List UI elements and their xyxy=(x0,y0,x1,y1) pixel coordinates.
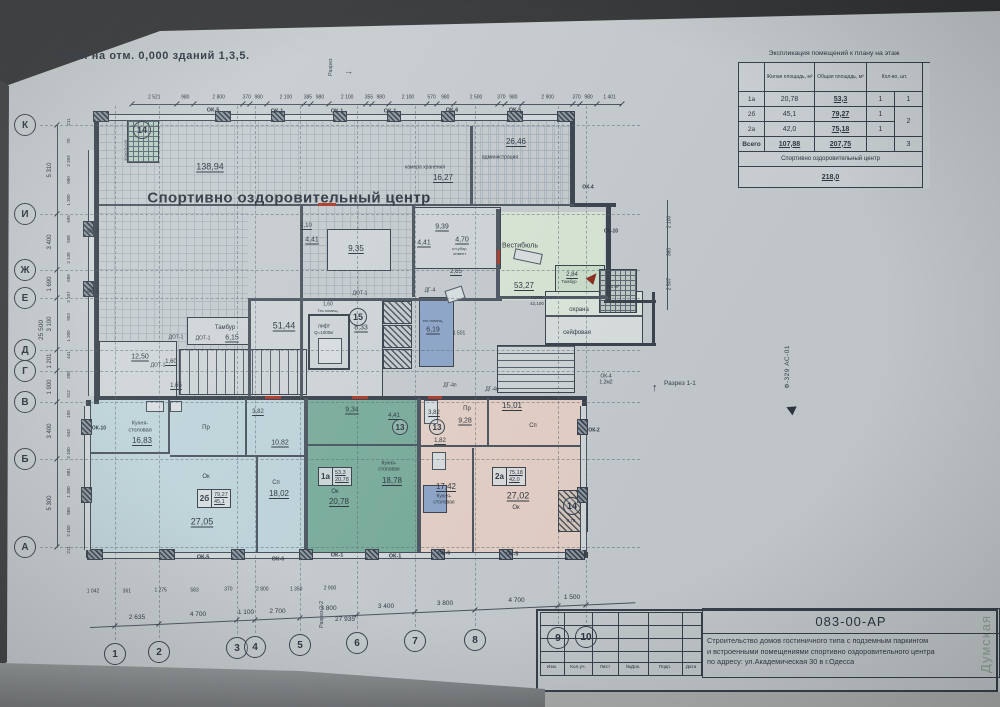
axis-line xyxy=(40,298,640,299)
dim-label: 1 350 xyxy=(290,587,303,592)
axis-bubble-row-Г: Г xyxy=(14,360,36,382)
plan-label: ДОТ-1 xyxy=(151,364,166,369)
axis-line xyxy=(237,106,238,634)
plan-label: 1,2м2 xyxy=(599,381,612,386)
plan-label: ОК-1 xyxy=(389,554,402,560)
plan-label: 18,78 xyxy=(382,477,402,485)
dim-line xyxy=(667,200,668,310)
plan-label: Q=1000кг xyxy=(314,331,334,336)
wall xyxy=(652,292,655,344)
plan-label: ОК-6 xyxy=(272,557,285,563)
axis-line xyxy=(40,547,640,548)
description-line: Строительство домов гостиничного типа с … xyxy=(707,636,999,647)
tb-col: Изм. xyxy=(547,665,557,670)
plan-label: тех.помещ. xyxy=(423,319,444,323)
document-number: 083-00-АР xyxy=(703,609,999,634)
plan-label: Сп xyxy=(272,480,280,486)
staircase-right xyxy=(498,346,574,392)
window xyxy=(88,150,95,396)
apartment-tag: 2б79,2745,1 xyxy=(197,489,231,508)
plan-label: 1,60 xyxy=(323,303,333,308)
dim-label: 980 xyxy=(181,96,189,101)
section-mark-bottom: Разрез 2-2 xyxy=(319,588,325,628)
dim-label: 2 521 xyxy=(148,96,161,101)
plan-label: 17,42 xyxy=(436,483,456,491)
exp-footer-value: 218,0 xyxy=(739,167,923,188)
plan-label: 1,65 xyxy=(170,383,182,389)
dim-label: 5 310 xyxy=(47,162,53,177)
dim-label: 385 xyxy=(304,96,312,101)
dim-label: 5 300 xyxy=(47,495,53,510)
wall-pier xyxy=(82,420,91,434)
dim-label: 3 800 xyxy=(437,601,453,608)
plan-label: 4,70 xyxy=(455,237,469,244)
axis-line xyxy=(40,371,640,372)
tag-type: 1а xyxy=(319,468,333,485)
dim-label: 1 401 xyxy=(603,96,616,101)
section-arrow-right-icon: ↑ xyxy=(652,382,658,394)
exp-header-total: Общая площадь, м² xyxy=(815,63,867,92)
wall xyxy=(170,455,306,457)
exp-header-blank xyxy=(739,63,765,92)
dim-label: 2 800 xyxy=(212,96,225,101)
wall-pier xyxy=(232,550,244,559)
dim-label: 1 200 xyxy=(67,330,72,341)
exp-cell: 207,75 xyxy=(815,137,867,152)
axis-bubble-col-2: 2 xyxy=(148,641,170,663)
dim-label: 2 900 xyxy=(324,587,337,592)
red-mark xyxy=(497,250,500,264)
dim-label: 2 700 xyxy=(269,608,285,615)
dim-total-left: 25 500 xyxy=(39,320,46,340)
plan-label: 3,0х0,3=0,9 xyxy=(124,140,128,161)
description-line: по адресу: ул.Академическая 30 в г.Одесс… xyxy=(707,657,999,668)
circled-number: 14 xyxy=(133,121,151,139)
exp-cell: 2б xyxy=(739,107,765,122)
dim-label: 200 xyxy=(67,371,72,379)
plan-label: инвент. xyxy=(453,252,466,256)
plan-label: Тех.помещ. xyxy=(317,309,338,313)
plan-label: 16,83 xyxy=(132,437,152,445)
dim-label: 370 xyxy=(497,96,505,101)
plan-label: 2,10 xyxy=(300,223,312,229)
exp-cell: 79,27 xyxy=(815,107,867,122)
dim-tick xyxy=(619,101,625,107)
titleblock-grid: Изм. Кол.уч. Лист №Док. Подп. Дата xyxy=(540,612,702,676)
exp-cell: 1 xyxy=(867,92,895,107)
dim-label: 211 xyxy=(67,546,72,553)
dim-label: 980 xyxy=(67,177,72,185)
section-mark-right: Разрез 1-1 xyxy=(664,380,696,387)
axis-bubble-row-А: А xyxy=(14,536,36,558)
dim-label: 495 xyxy=(67,216,72,224)
wall xyxy=(472,448,474,552)
stamp-triangle-icon xyxy=(784,403,796,416)
vent-shaft xyxy=(384,350,411,368)
titleblock-document: 083-00-АР Строительство домов гостинично… xyxy=(702,608,1000,678)
dim-label: 1 900 xyxy=(47,379,53,394)
exp-cell: 1 xyxy=(867,107,895,122)
tb-col: Лист xyxy=(600,665,610,670)
plan-label: ОК-5 xyxy=(197,555,210,561)
plan-label: столовая xyxy=(128,428,151,434)
dim-label: 881 xyxy=(67,468,72,476)
dim-label: 688 xyxy=(67,274,72,282)
plan-label: ОК-1 xyxy=(87,230,98,235)
axis-bubble-row-Д: Д xyxy=(14,339,36,361)
safe-room xyxy=(546,316,642,344)
dim-label: 943 xyxy=(67,430,72,438)
plan-label: ОК-5 xyxy=(207,108,220,114)
wall xyxy=(248,298,251,397)
plan-label: 16,27 xyxy=(433,174,453,182)
project-description: Строительство домов гостиничного типа с … xyxy=(703,634,999,668)
plan-label: камера хранения xyxy=(405,166,445,171)
plan-label: 1,82 xyxy=(434,438,446,444)
hall-title: Спортивно оздоровительный центр xyxy=(147,191,430,206)
exp-cell: 20,78 xyxy=(765,92,815,107)
red-mark xyxy=(265,396,281,399)
dim-label: 360 xyxy=(668,248,673,256)
dim-label: 355 xyxy=(365,96,373,101)
explication-title: Экспликация помещений к плану на этаж xyxy=(738,50,930,57)
dim-label: 570 xyxy=(427,96,435,101)
axis-line xyxy=(558,106,559,624)
axis-bubble-col-8: 8 xyxy=(464,629,486,651)
plan-label: администрация xyxy=(482,156,518,161)
dim-label: 2 138 xyxy=(67,253,72,264)
dim-label: 3 400 xyxy=(47,234,53,249)
tb-col: Дата xyxy=(686,665,697,670)
tag-areas: 53,320,78 xyxy=(333,468,351,485)
dim-label: 1 275 xyxy=(154,589,167,594)
axis-line xyxy=(40,214,640,215)
dim-label: 70 xyxy=(67,139,72,144)
photo-edge-bottom-right xyxy=(545,692,1000,707)
plan-label: 138,94 xyxy=(196,163,224,172)
axis-bubble-col-1: 1 xyxy=(104,643,126,665)
dim-label: 1 201 xyxy=(47,353,53,368)
plan-label: 1,60 xyxy=(165,359,177,365)
dim-label: 583 xyxy=(190,588,198,593)
plan-label: Ок xyxy=(512,505,519,511)
axis-line xyxy=(40,350,640,351)
dim-label: 1 042 xyxy=(87,590,100,595)
axis-line xyxy=(300,106,301,631)
plan-label: 12,50 xyxy=(131,354,149,361)
wall xyxy=(256,457,258,552)
plan-label: ОК-1 xyxy=(384,109,397,115)
exp-cell: 2 xyxy=(895,107,923,137)
wall xyxy=(604,300,656,303)
dim-label: 865 xyxy=(67,507,72,515)
plan-label: 4,41 xyxy=(305,237,319,244)
dim-label: 441 xyxy=(67,352,72,360)
tag-areas: 79,2745,1 xyxy=(212,490,230,507)
vent-shaft xyxy=(384,302,411,323)
plan-label: Тамбур xyxy=(215,325,235,331)
plan-label: ОК-10 xyxy=(92,427,106,432)
plan-label: ДГ-4н xyxy=(485,388,498,393)
plan-label: 27,02 xyxy=(507,492,530,501)
apartment-tag: 2а75,1842,0 xyxy=(492,467,526,486)
wall xyxy=(546,315,642,317)
plan-label: столовая xyxy=(378,468,399,473)
axis-line xyxy=(357,106,358,629)
plan-label: 53,27 xyxy=(514,282,534,290)
wall xyxy=(304,398,308,554)
plan-label: 18,02 xyxy=(269,490,289,498)
dim-label: 370 xyxy=(243,96,251,101)
dim-label: 2 107 xyxy=(67,291,72,302)
circled-number: 13 xyxy=(392,419,408,435)
dim-label: 980 xyxy=(254,96,262,101)
plan-label: ДОТ-1 xyxy=(169,336,184,341)
plan-label: Ок xyxy=(202,474,209,480)
wall-pier xyxy=(160,550,174,559)
axis-line xyxy=(255,106,256,633)
plan-label: Вестибюль xyxy=(502,243,538,250)
red-mark xyxy=(428,396,442,399)
plan-label: 42,100 xyxy=(530,302,544,307)
exp-cell: 1 xyxy=(895,92,923,107)
dim-label: 2 100 xyxy=(402,96,415,101)
plan-label: 15,01 xyxy=(502,402,522,410)
wall-pier xyxy=(558,112,574,121)
exp-cell: 107,88 xyxy=(765,137,815,152)
plan-label: ДГ-4п xyxy=(443,384,456,389)
dim-label: 4 700 xyxy=(190,612,206,619)
plan-label: 3,82 xyxy=(428,410,440,416)
axis-bubble-row-Е: Е xyxy=(14,287,36,309)
dim-label: 980 xyxy=(377,96,385,101)
plan-label: 9,28 xyxy=(458,418,472,425)
plan-label: 51,44 xyxy=(273,322,296,331)
dim-label: 1 100 xyxy=(238,610,254,617)
axis-line xyxy=(415,106,416,627)
plan-label: 6,19 xyxy=(426,327,440,334)
plan-label: Сп xyxy=(529,423,537,429)
plan-label: Ок xyxy=(331,489,338,495)
plan-label: ДГ-4 xyxy=(425,289,436,294)
dim-label: 2 900 xyxy=(541,96,554,101)
dim-label: 1 500 xyxy=(564,595,580,602)
form-stamp: Ф-329 АС-01 xyxy=(784,345,791,389)
exp-cell: Всего xyxy=(739,137,765,152)
dim-label: 2 393 xyxy=(67,155,72,166)
wall-pier xyxy=(566,550,584,559)
plan-label: ОК-5 xyxy=(509,108,522,114)
plan-label: ОК-1 xyxy=(331,553,344,559)
plan-label: 2,84 xyxy=(566,272,578,278)
dim-label: 1 690 xyxy=(47,276,53,291)
plan-label: ОК-5 xyxy=(506,552,519,558)
staircase-left xyxy=(180,350,306,394)
dim-label: 2 100 xyxy=(67,447,72,458)
red-mark xyxy=(352,396,368,399)
plan-label: ОК-1 xyxy=(87,290,98,295)
axis-bubble-row-И: И xyxy=(14,203,36,225)
dim-label: 953 xyxy=(67,313,72,321)
dim-label: 980 xyxy=(509,96,517,101)
exp-footer-label: Спортивно оздоровительный центр xyxy=(739,152,923,167)
dim-label: 980 xyxy=(441,96,449,101)
dim-label: 370 xyxy=(572,96,580,101)
dim-line xyxy=(57,125,58,547)
exp-header-count: Кол-во, шт. xyxy=(867,63,923,92)
dim-label: 312 xyxy=(67,391,72,399)
page-title: План на отм. 0,000 зданий 1,3,5. xyxy=(58,50,250,62)
axis-line xyxy=(115,106,116,640)
plan-label: ДОТ-1 xyxy=(196,337,211,342)
wall-pier xyxy=(366,550,378,559)
dim-total-bottom: 27 935 xyxy=(335,617,355,624)
plan-label: ОК-4 xyxy=(582,186,593,191)
exp-cell xyxy=(867,137,895,152)
exp-cell: 42,0 xyxy=(765,122,815,137)
apartment-tag: 1а53,320,78 xyxy=(318,467,352,486)
exp-cell: 1 xyxy=(867,122,895,137)
plan-label: 6,1 м² xyxy=(607,285,619,290)
axis-bubble-col-4: 4 xyxy=(244,636,266,658)
dim-label: 2 635 xyxy=(129,615,145,622)
plan-label: Пр xyxy=(202,425,210,431)
wall-pier xyxy=(94,112,108,121)
tb-col: Подп. xyxy=(659,665,672,670)
exp-cell: 2а xyxy=(739,122,765,137)
axis-line xyxy=(40,270,640,271)
fixture xyxy=(432,452,446,470)
dim-label: 1 300 xyxy=(67,486,72,497)
photo-dark-edge-left xyxy=(0,80,10,670)
axis-line xyxy=(40,125,640,126)
plan-label: 0,76 xyxy=(567,519,576,524)
titleblock-frame xyxy=(536,609,538,692)
axis-bubble-row-Б: Б xyxy=(14,448,36,470)
plan-label: Тамбур xyxy=(561,280,576,285)
exp-cell: 45,1 xyxy=(765,107,815,122)
dim-label: 211 xyxy=(67,118,72,125)
dim-label: 2 100 xyxy=(668,216,673,229)
axis-line xyxy=(159,106,160,638)
plan-label: 26,46 xyxy=(506,138,526,146)
plan-label: Пр xyxy=(463,406,471,412)
plan-label: ОК-6 xyxy=(438,551,451,557)
wall-pier xyxy=(82,488,91,502)
circled-number: 14 xyxy=(563,497,581,515)
circled-number: 15 xyxy=(349,308,367,326)
wall xyxy=(487,398,489,446)
plan-label: ОК-1 xyxy=(271,109,284,115)
plan-label: 10,82 xyxy=(271,440,289,447)
dim-label: 980 xyxy=(316,96,324,101)
wall xyxy=(308,444,420,446)
axis-bubble-row-К: К xyxy=(14,114,36,136)
plan-label: 4,41 xyxy=(417,240,431,247)
axis-bubble-col-7: 7 xyxy=(404,630,426,652)
dim-label: 105 xyxy=(67,410,72,418)
dim-label: 3 400 xyxy=(47,423,53,438)
description-line: и встроенными помещениями спортивно оздо… xyxy=(707,647,999,658)
plan-label: ОК-1 xyxy=(331,109,344,115)
tb-col: №Док. xyxy=(626,665,641,670)
plan-label: ОК-6 xyxy=(446,108,459,114)
plan-label: 9,39 xyxy=(435,224,449,231)
dim-line xyxy=(132,104,622,105)
exp-cell: 1а xyxy=(739,92,765,107)
circled-number: 13 xyxy=(429,419,445,435)
plan-label: 1 501 xyxy=(453,332,466,337)
section-arrow-top-icon: → xyxy=(344,66,353,76)
plan-label: лифт xyxy=(318,325,330,330)
dim-label: 370 xyxy=(224,588,232,593)
lift-car xyxy=(318,338,342,364)
axis-line xyxy=(40,459,640,460)
dim-label: 361 xyxy=(123,589,131,594)
plan-label: ДОТ-1 xyxy=(353,292,368,297)
wall xyxy=(546,343,656,346)
plan-label: 3,82 xyxy=(252,409,264,415)
apartment-2b xyxy=(91,400,306,552)
exp-cell: 3 xyxy=(895,137,923,152)
wall xyxy=(570,114,575,207)
dim-label: 980 xyxy=(584,96,592,101)
plan-label: 27,05 xyxy=(191,518,214,527)
explication-table: Экспликация помещений к плану на этаж Жи… xyxy=(738,50,930,188)
tb-col: Кол.уч. xyxy=(570,665,586,670)
plan-label: Кухня- xyxy=(132,421,149,427)
axis-line xyxy=(475,106,476,626)
wall xyxy=(417,398,421,554)
wall-pier xyxy=(88,550,102,559)
exp-cell: 53,3 xyxy=(815,92,867,107)
dim-label: 2 500 xyxy=(470,96,483,101)
tag-areas: 75,1842,0 xyxy=(507,468,525,485)
tag-type: 2б xyxy=(198,490,212,507)
dim-label: 2 507 xyxy=(668,278,673,291)
plan-label: 20,78 xyxy=(329,498,349,506)
dim-label: 3 400 xyxy=(378,603,394,610)
dim-label: 3 100 xyxy=(47,316,53,331)
tag-type: 2а xyxy=(493,468,507,485)
axis-line xyxy=(586,106,587,623)
plan-label: ОК-2 xyxy=(588,429,599,434)
plan-label: 9,35 xyxy=(348,245,364,253)
vent-shaft xyxy=(384,326,411,347)
wall xyxy=(470,126,473,206)
wall xyxy=(245,398,247,456)
exp-header-living: Жилая площадь, м² xyxy=(765,63,815,92)
plan-label: ОК-10 xyxy=(604,230,618,235)
axis-line xyxy=(40,402,640,403)
axis-bubble-row-В: В xyxy=(14,391,36,413)
plan-label: столовая xyxy=(433,501,454,506)
section-mark-top: Разрез xyxy=(328,42,334,76)
axis-bubble-col-6: 6 xyxy=(346,632,368,654)
axis-bubble-row-Ж: Ж xyxy=(14,259,36,281)
wall-pier xyxy=(300,550,312,559)
axis-bubble-col-5: 5 xyxy=(289,634,311,656)
dim-label: 2 450 xyxy=(67,525,72,536)
dim-label: 1 300 xyxy=(67,194,72,205)
exp-cell: 75,18 xyxy=(815,122,867,137)
dim-label: 508 xyxy=(67,235,72,243)
dim-label: 2 100 xyxy=(341,96,354,101)
dim-label: 2 800 xyxy=(256,587,269,592)
wall xyxy=(421,445,584,447)
dim-label: 4 700 xyxy=(508,598,524,605)
dim-label: 2 100 xyxy=(280,96,293,101)
